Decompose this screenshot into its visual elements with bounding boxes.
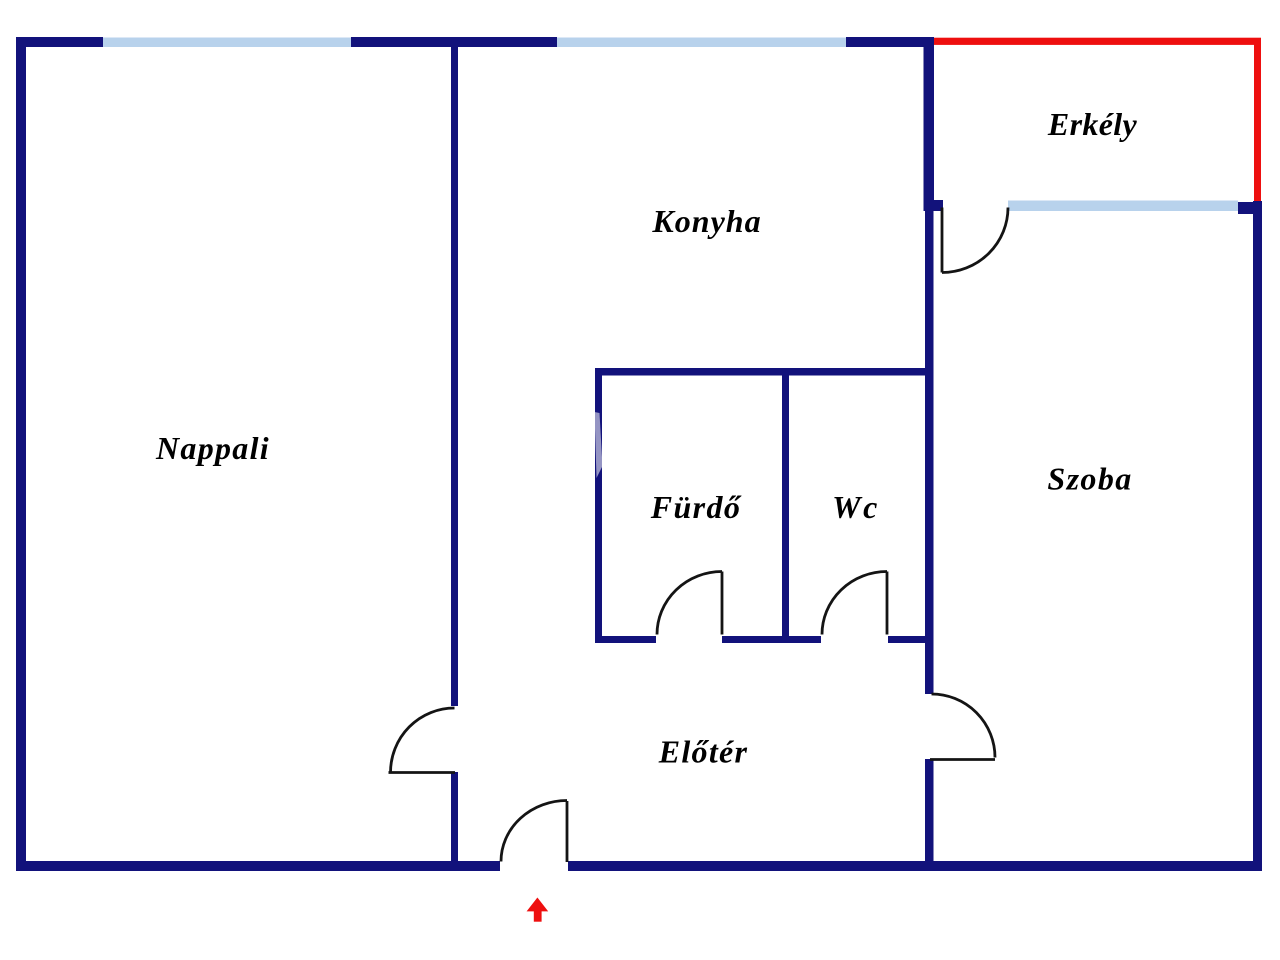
svg-text:Előtér: Előtér [658,734,749,770]
svg-text:Wc: Wc [832,489,880,525]
svg-text:Erkély: Erkély [1047,106,1138,142]
svg-text:Szoba: Szoba [1047,461,1132,497]
svg-text:Fürdő: Fürdő [650,489,742,525]
svg-text:Nappali: Nappali [155,430,270,466]
svg-text:Konyha: Konyha [651,203,761,239]
